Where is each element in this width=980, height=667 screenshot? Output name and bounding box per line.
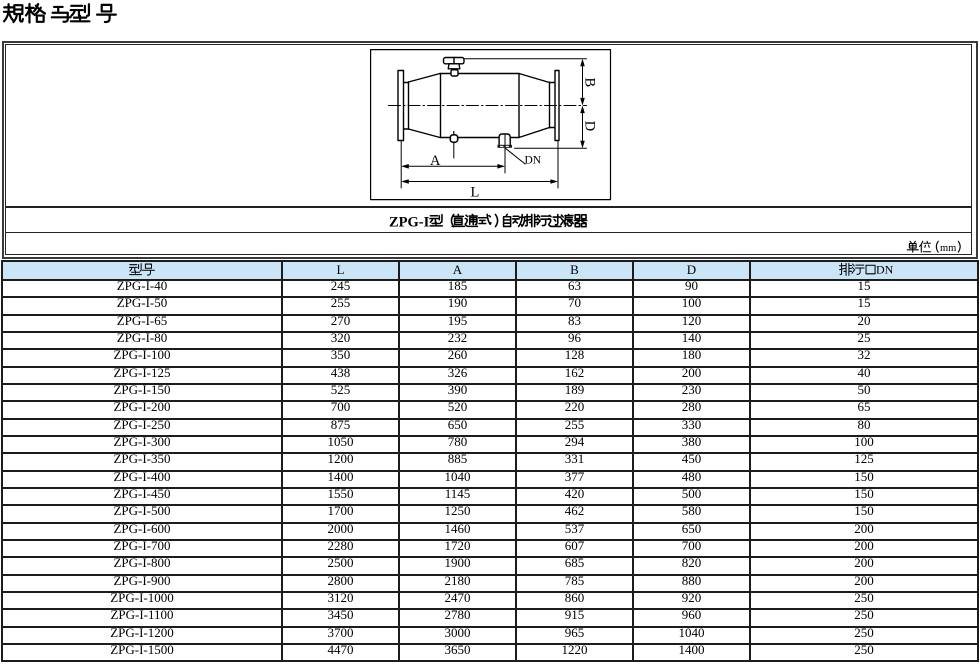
svg-text:DN: DN xyxy=(524,154,541,166)
svg-text:A: A xyxy=(430,152,441,168)
svg-text:D: D xyxy=(581,120,597,130)
svg-text:DN: DN xyxy=(876,263,894,277)
svg-text:B: B xyxy=(581,77,597,87)
svg-text:ZPG-I: ZPG-I xyxy=(389,214,430,230)
svg-text:mm: mm xyxy=(940,243,956,254)
svg-text:L: L xyxy=(470,184,479,200)
